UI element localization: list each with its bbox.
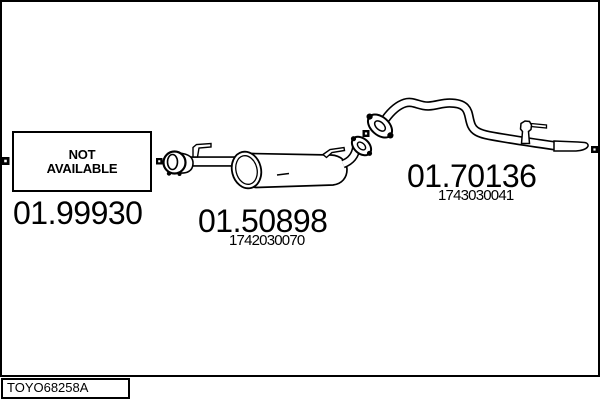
hanger-bracket-icon <box>521 121 532 144</box>
exhaust-diagram-page: NOT AVAILABLE 01.99930 01.50898 17420300… <box>0 0 600 400</box>
tail-pipe-drawing[interactable] <box>364 102 588 151</box>
muffler-drawing[interactable] <box>164 133 375 191</box>
not-available-box: NOT AVAILABLE <box>12 131 152 192</box>
part-code-front-pipe[interactable]: 01.99930 <box>13 197 142 229</box>
drawing-reference-label: TOYO68258A <box>7 380 88 395</box>
hanger-pin-icon <box>193 144 211 158</box>
connector-marker <box>156 158 163 165</box>
connector-marker <box>2 157 10 165</box>
not-available-line2: AVAILABLE <box>47 162 118 176</box>
connector-marker <box>363 130 370 137</box>
hanger-pin-icon <box>531 124 547 129</box>
drawing-reference-box: TOYO68258A <box>1 378 130 399</box>
tail-pipe-tip <box>554 141 588 151</box>
oe-number-muffler: 1742030070 <box>229 233 304 248</box>
not-available-line1: NOT <box>69 148 96 162</box>
connector-marker <box>591 146 598 153</box>
oe-number-tail-pipe: 1743030041 <box>438 188 513 203</box>
